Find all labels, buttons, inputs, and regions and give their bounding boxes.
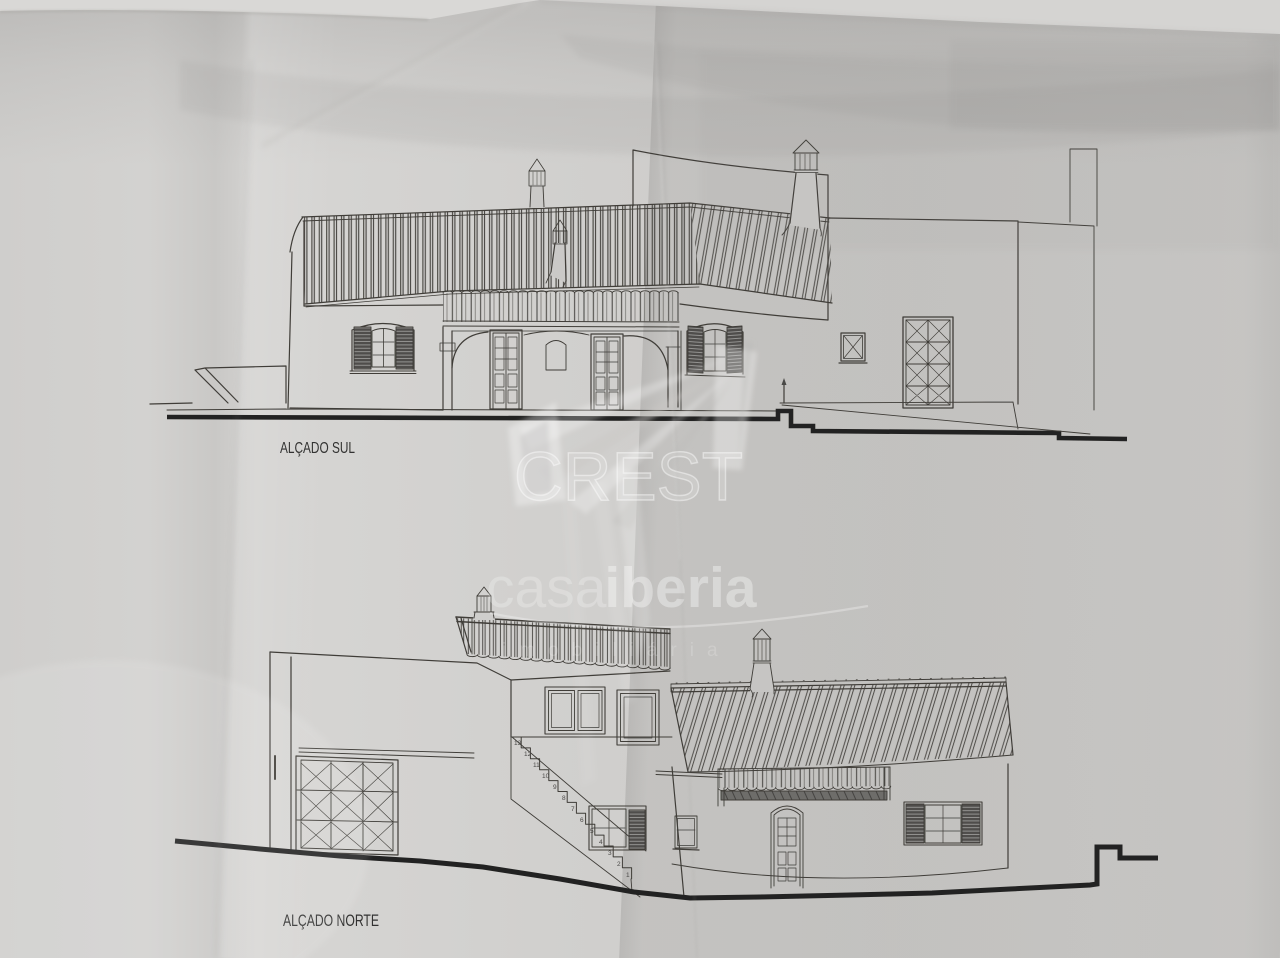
- svg-text:13: 13: [514, 740, 522, 747]
- svg-text:9: 9: [553, 784, 557, 791]
- svg-text:CREST: CREST: [514, 438, 743, 515]
- svg-text:1: 1: [626, 872, 630, 879]
- svg-text:2: 2: [617, 861, 621, 868]
- svg-text:8: 8: [562, 795, 566, 802]
- svg-text:casaiberia: casaiberia: [486, 556, 758, 620]
- svg-text:6: 6: [580, 817, 584, 824]
- svg-text:imobiliária: imobiliária: [502, 640, 731, 661]
- svg-text:12: 12: [524, 751, 532, 758]
- svg-text:11: 11: [533, 762, 540, 769]
- svg-text:4: 4: [599, 839, 603, 846]
- svg-text:7: 7: [571, 806, 575, 813]
- svg-text:10: 10: [542, 773, 550, 780]
- svg-text:ALÇADO SUL: ALÇADO SUL: [280, 440, 355, 457]
- svg-text:3: 3: [608, 850, 612, 857]
